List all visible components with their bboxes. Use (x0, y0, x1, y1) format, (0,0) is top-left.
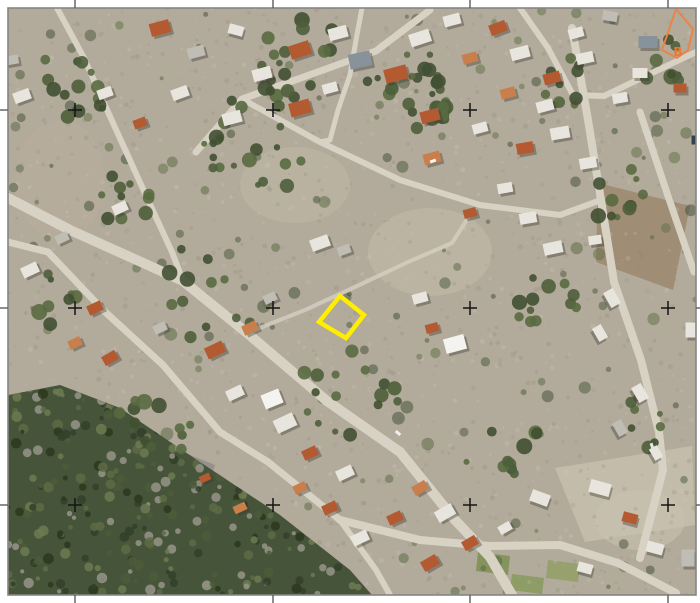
texture-dot (634, 15, 636, 17)
texture-dot (328, 214, 330, 216)
texture-dot (487, 328, 490, 331)
texture-dot (334, 165, 336, 167)
forest-dot (79, 484, 86, 491)
texture-dot (458, 328, 463, 333)
texture-dot (415, 456, 418, 459)
texture-dot (28, 185, 32, 189)
texture-dot (340, 22, 343, 25)
texture-dot (655, 76, 657, 78)
scrub-dot (531, 77, 541, 87)
forest-dot (57, 589, 61, 593)
texture-dot (598, 89, 600, 91)
forest-dot (170, 579, 178, 587)
texture-dot (325, 339, 327, 341)
texture-dot (691, 64, 695, 68)
texture-dot (627, 178, 631, 182)
texture-dot (16, 147, 19, 150)
texture-dot (294, 397, 297, 400)
texture-dot (392, 160, 396, 164)
tree (71, 80, 85, 94)
texture-dot (658, 266, 663, 271)
texture-dot (211, 365, 214, 368)
forest-dot (349, 582, 356, 589)
forest-dot (48, 582, 54, 588)
texture-dot (471, 385, 476, 390)
scrub-dot (646, 566, 655, 575)
texture-dot (320, 188, 324, 192)
texture-dot (234, 424, 236, 426)
tree (607, 212, 616, 221)
texture-dot (307, 65, 309, 67)
texture-dot (271, 155, 274, 158)
forest-dot (209, 503, 218, 512)
texture-dot (230, 381, 232, 383)
texture-dot (291, 256, 296, 261)
texture-dot (239, 269, 242, 272)
tree (311, 388, 319, 396)
texture-dot (657, 184, 660, 187)
texture-dot (172, 428, 174, 430)
texture-dot (143, 360, 146, 363)
texture-dot (514, 325, 516, 327)
forest-dot (34, 529, 44, 539)
forest-dot (130, 433, 137, 440)
texture-dot (660, 539, 663, 542)
texture-dot (392, 556, 395, 559)
texture-dot (241, 63, 246, 68)
texture-dot (105, 231, 110, 236)
texture-dot (366, 119, 370, 123)
scrub-dot (631, 147, 642, 158)
texture-dot (404, 301, 405, 302)
texture-dot (189, 226, 193, 230)
forest-dot (311, 573, 315, 577)
texture-dot (600, 569, 602, 571)
texture-dot (561, 440, 565, 444)
texture-dot (459, 98, 463, 102)
forest-dot (81, 421, 90, 430)
texture-dot (594, 262, 597, 265)
texture-dot (479, 14, 483, 18)
texture-dot (538, 239, 543, 244)
texture-dot (262, 243, 267, 248)
texture-dot (587, 219, 590, 222)
texture-dot (79, 34, 82, 37)
scrub-dot (492, 132, 499, 139)
texture-dot (502, 345, 506, 349)
texture-dot (689, 80, 691, 82)
tree (512, 295, 527, 310)
texture-dot (222, 264, 225, 267)
texture-dot (349, 448, 354, 453)
texture-dot (621, 176, 624, 179)
forest-dot (107, 518, 114, 525)
tree (220, 275, 228, 283)
forest-dot (57, 530, 63, 536)
texture-dot (565, 150, 570, 155)
texture-dot (323, 252, 327, 256)
texture-dot (262, 14, 264, 16)
texture-dot (490, 254, 495, 259)
forest-dot (29, 504, 36, 511)
texture-dot (433, 383, 437, 387)
tree (46, 82, 61, 97)
texture-dot (680, 438, 684, 442)
texture-dot (226, 44, 229, 47)
texture-dot (513, 28, 516, 31)
forest-dot (75, 392, 82, 399)
tree (541, 279, 556, 294)
texture-dot (135, 147, 139, 151)
texture-dot (432, 24, 436, 28)
texture-dot (196, 277, 201, 282)
tree (387, 381, 401, 395)
forest-dot (129, 428, 134, 433)
texture-dot (150, 56, 153, 59)
texture-dot (433, 277, 436, 280)
texture-dot (224, 79, 229, 84)
texture-dot (558, 535, 563, 540)
texture-dot (249, 280, 253, 284)
scrub-dot (680, 476, 688, 484)
texture-dot (15, 217, 18, 220)
texture-dot (688, 405, 692, 409)
texture-dot (455, 164, 457, 166)
texture-dot (483, 46, 486, 49)
texture-dot (155, 303, 159, 307)
texture-dot (372, 288, 375, 291)
texture-dot (542, 198, 543, 199)
texture-dot (335, 16, 339, 20)
texture-dot (86, 90, 88, 92)
texture-dot (628, 14, 631, 17)
tree (201, 141, 207, 147)
texture-dot (388, 220, 390, 222)
texture-dot (579, 232, 584, 237)
texture-dot (140, 320, 142, 322)
texture-dot (671, 515, 674, 518)
scrub-dot (15, 70, 25, 80)
texture-dot (489, 341, 493, 345)
texture-dot (511, 118, 515, 122)
texture-dot (589, 177, 592, 180)
forest-dot (133, 579, 138, 584)
texture-dot (602, 149, 604, 151)
texture-dot (149, 236, 151, 238)
texture-dot (637, 268, 640, 271)
texture-dot (576, 233, 578, 235)
texture-dot (51, 102, 53, 104)
tree (281, 84, 295, 98)
scrub-dot (176, 230, 184, 238)
texture-dot (345, 398, 348, 401)
scrub-dot (392, 412, 405, 425)
texture-dot (598, 60, 600, 62)
texture-dot (347, 213, 349, 215)
forest-dot (15, 507, 24, 516)
tree (628, 424, 636, 432)
forest-dot (128, 557, 137, 566)
texture-dot (366, 470, 368, 472)
texture-dot (145, 304, 147, 306)
tree (404, 52, 410, 58)
tree (88, 69, 95, 76)
texture-dot (374, 213, 377, 216)
texture-dot (627, 558, 630, 561)
texture-dot (147, 63, 150, 66)
texture-dot (294, 320, 296, 322)
texture-dot (205, 211, 207, 213)
tree (311, 368, 324, 381)
house (686, 323, 697, 338)
texture-dot (411, 161, 413, 163)
forest-dot (106, 451, 116, 461)
texture-dot (273, 446, 277, 450)
texture-dot (279, 135, 281, 137)
texture-dot (230, 140, 235, 145)
forest-dot (128, 569, 133, 574)
scrub-dot (539, 118, 545, 124)
texture-dot (344, 129, 346, 131)
texture-dot (400, 331, 404, 335)
scrub-dot (421, 438, 434, 451)
texture-dot (41, 105, 45, 109)
forest-dot (118, 585, 126, 593)
forest-dot (92, 484, 99, 491)
texture-dot (240, 309, 243, 312)
texture-dot (274, 384, 276, 386)
forest-dot (234, 541, 241, 548)
forest-dot (263, 578, 271, 586)
texture-dot (325, 165, 328, 168)
texture-dot (632, 29, 635, 32)
texture-dot (108, 382, 112, 386)
texture-dot (247, 11, 251, 15)
texture-dot (196, 39, 199, 42)
texture-dot (121, 389, 125, 393)
scrub-dot (374, 115, 379, 120)
tree (210, 154, 218, 162)
texture-dot (545, 460, 549, 464)
texture-dot (501, 161, 504, 164)
tree (209, 130, 224, 145)
texture-dot (443, 72, 445, 74)
texture-dot (586, 477, 589, 480)
texture-dot (565, 355, 569, 359)
texture-dot (411, 197, 415, 201)
texture-dot (34, 295, 36, 297)
tree (510, 469, 519, 478)
forest-dot (12, 543, 19, 550)
forest-dot (11, 412, 22, 423)
tree (40, 55, 50, 65)
texture-dot (427, 95, 429, 97)
tree (318, 45, 331, 58)
texture-dot (166, 126, 169, 129)
texture-dot (338, 211, 339, 212)
texture-dot (237, 348, 239, 350)
texture-dot (148, 44, 150, 46)
texture-dot (402, 524, 406, 528)
texture-dot (211, 251, 216, 256)
tree (186, 421, 194, 429)
texture-dot (564, 470, 569, 475)
texture-dot (36, 290, 40, 294)
texture-dot (223, 73, 224, 74)
texture-dot (377, 508, 380, 511)
texture-dot (55, 139, 57, 141)
tree (374, 400, 383, 409)
texture-dot (464, 497, 468, 501)
texture-dot (603, 570, 606, 573)
texture-dot (251, 350, 254, 353)
forest-dot (24, 578, 34, 588)
texture-dot (398, 370, 400, 372)
texture-dot (440, 308, 443, 311)
texture-dot (566, 115, 570, 119)
texture-dot (382, 62, 387, 67)
forest-dot (190, 504, 195, 509)
texture-dot (521, 102, 525, 106)
texture-dot (376, 478, 381, 483)
texture-dot (96, 377, 101, 382)
texture-dot (560, 590, 564, 594)
texture-dot (601, 581, 604, 584)
texture-dot (353, 72, 358, 77)
texture-dot (495, 363, 500, 368)
texture-dot (334, 243, 337, 246)
forest-dot (66, 438, 71, 443)
texture-dot (484, 145, 486, 147)
texture-dot (333, 443, 338, 448)
texture-dot (58, 147, 60, 149)
scrub-dot (453, 263, 461, 271)
forest-dot (82, 555, 89, 562)
texture-dot (476, 286, 481, 291)
texture-dot (573, 559, 577, 563)
texture-dot (15, 80, 17, 82)
texture-dot (197, 36, 199, 38)
texture-dot (103, 374, 104, 375)
texture-dot (69, 262, 71, 264)
tree (184, 331, 196, 343)
texture-dot (211, 397, 213, 399)
scrub-dot (613, 63, 618, 68)
texture-dot (100, 179, 105, 184)
texture-dot (193, 44, 196, 47)
texture-dot (336, 544, 339, 547)
texture-dot (642, 143, 645, 146)
texture-dot (644, 416, 648, 420)
texture-dot (551, 196, 556, 201)
tree (487, 427, 497, 437)
forest-dot (210, 581, 216, 587)
forest-dot (189, 539, 196, 546)
texture-dot (579, 19, 581, 21)
scrub-dot (241, 284, 248, 291)
texture-dot (692, 446, 694, 448)
forest-dot (20, 547, 29, 556)
texture-dot (451, 99, 454, 102)
tree (180, 271, 195, 286)
texture-dot (294, 140, 298, 144)
texture-dot (122, 261, 124, 263)
texture-dot (193, 69, 198, 74)
tree (176, 444, 187, 455)
texture-dot (185, 406, 189, 410)
texture-dot (449, 137, 452, 140)
forest-dot (39, 484, 44, 489)
texture-dot (149, 169, 151, 171)
scrub-dot (11, 122, 21, 132)
forest-dot (70, 430, 76, 436)
scrub-dot (619, 539, 629, 549)
texture-dot (451, 358, 455, 362)
texture-dot (9, 84, 11, 86)
tree (667, 70, 676, 79)
texture-dot (99, 21, 102, 24)
texture-dot (426, 516, 428, 518)
texture-dot (425, 271, 428, 274)
texture-dot (239, 416, 242, 419)
texture-dot (315, 353, 318, 356)
tree (361, 365, 370, 374)
texture-dot (252, 372, 257, 377)
texture-dot (390, 184, 394, 188)
scrub-dot (289, 287, 301, 299)
texture-dot (170, 383, 173, 386)
texture-dot (280, 246, 284, 250)
texture-dot (692, 491, 695, 494)
texture-dot (21, 234, 23, 236)
texture-dot (365, 582, 369, 586)
texture-dot (130, 359, 134, 363)
texture-dot (454, 431, 459, 436)
texture-dot (450, 549, 452, 551)
forest-dot (23, 448, 32, 457)
texture-dot (361, 222, 365, 226)
texture-dot (608, 142, 610, 144)
texture-dot (317, 130, 321, 134)
texture-dot (304, 172, 308, 176)
tree (305, 80, 316, 91)
texture-dot (463, 295, 467, 299)
texture-dot (547, 514, 550, 517)
texture-dot (313, 164, 315, 166)
texture-dot (682, 426, 684, 428)
texture-dot (441, 450, 445, 454)
texture-dot (486, 569, 488, 571)
texture-dot (317, 179, 321, 183)
tree (126, 180, 134, 188)
texture-dot (56, 156, 61, 161)
texture-dot (271, 161, 273, 163)
texture-dot (101, 349, 105, 353)
texture-dot (538, 149, 541, 152)
scrub-dot (685, 204, 697, 216)
forest-dot (84, 562, 93, 571)
texture-dot (93, 120, 96, 123)
tree (656, 422, 665, 431)
texture-dot (631, 126, 632, 127)
tree (638, 190, 648, 200)
texture-dot (355, 256, 359, 260)
texture-dot (308, 336, 310, 338)
texture-dot (437, 360, 440, 363)
texture-dot (518, 244, 523, 249)
forest-dot (92, 584, 96, 588)
texture-dot (475, 90, 479, 94)
